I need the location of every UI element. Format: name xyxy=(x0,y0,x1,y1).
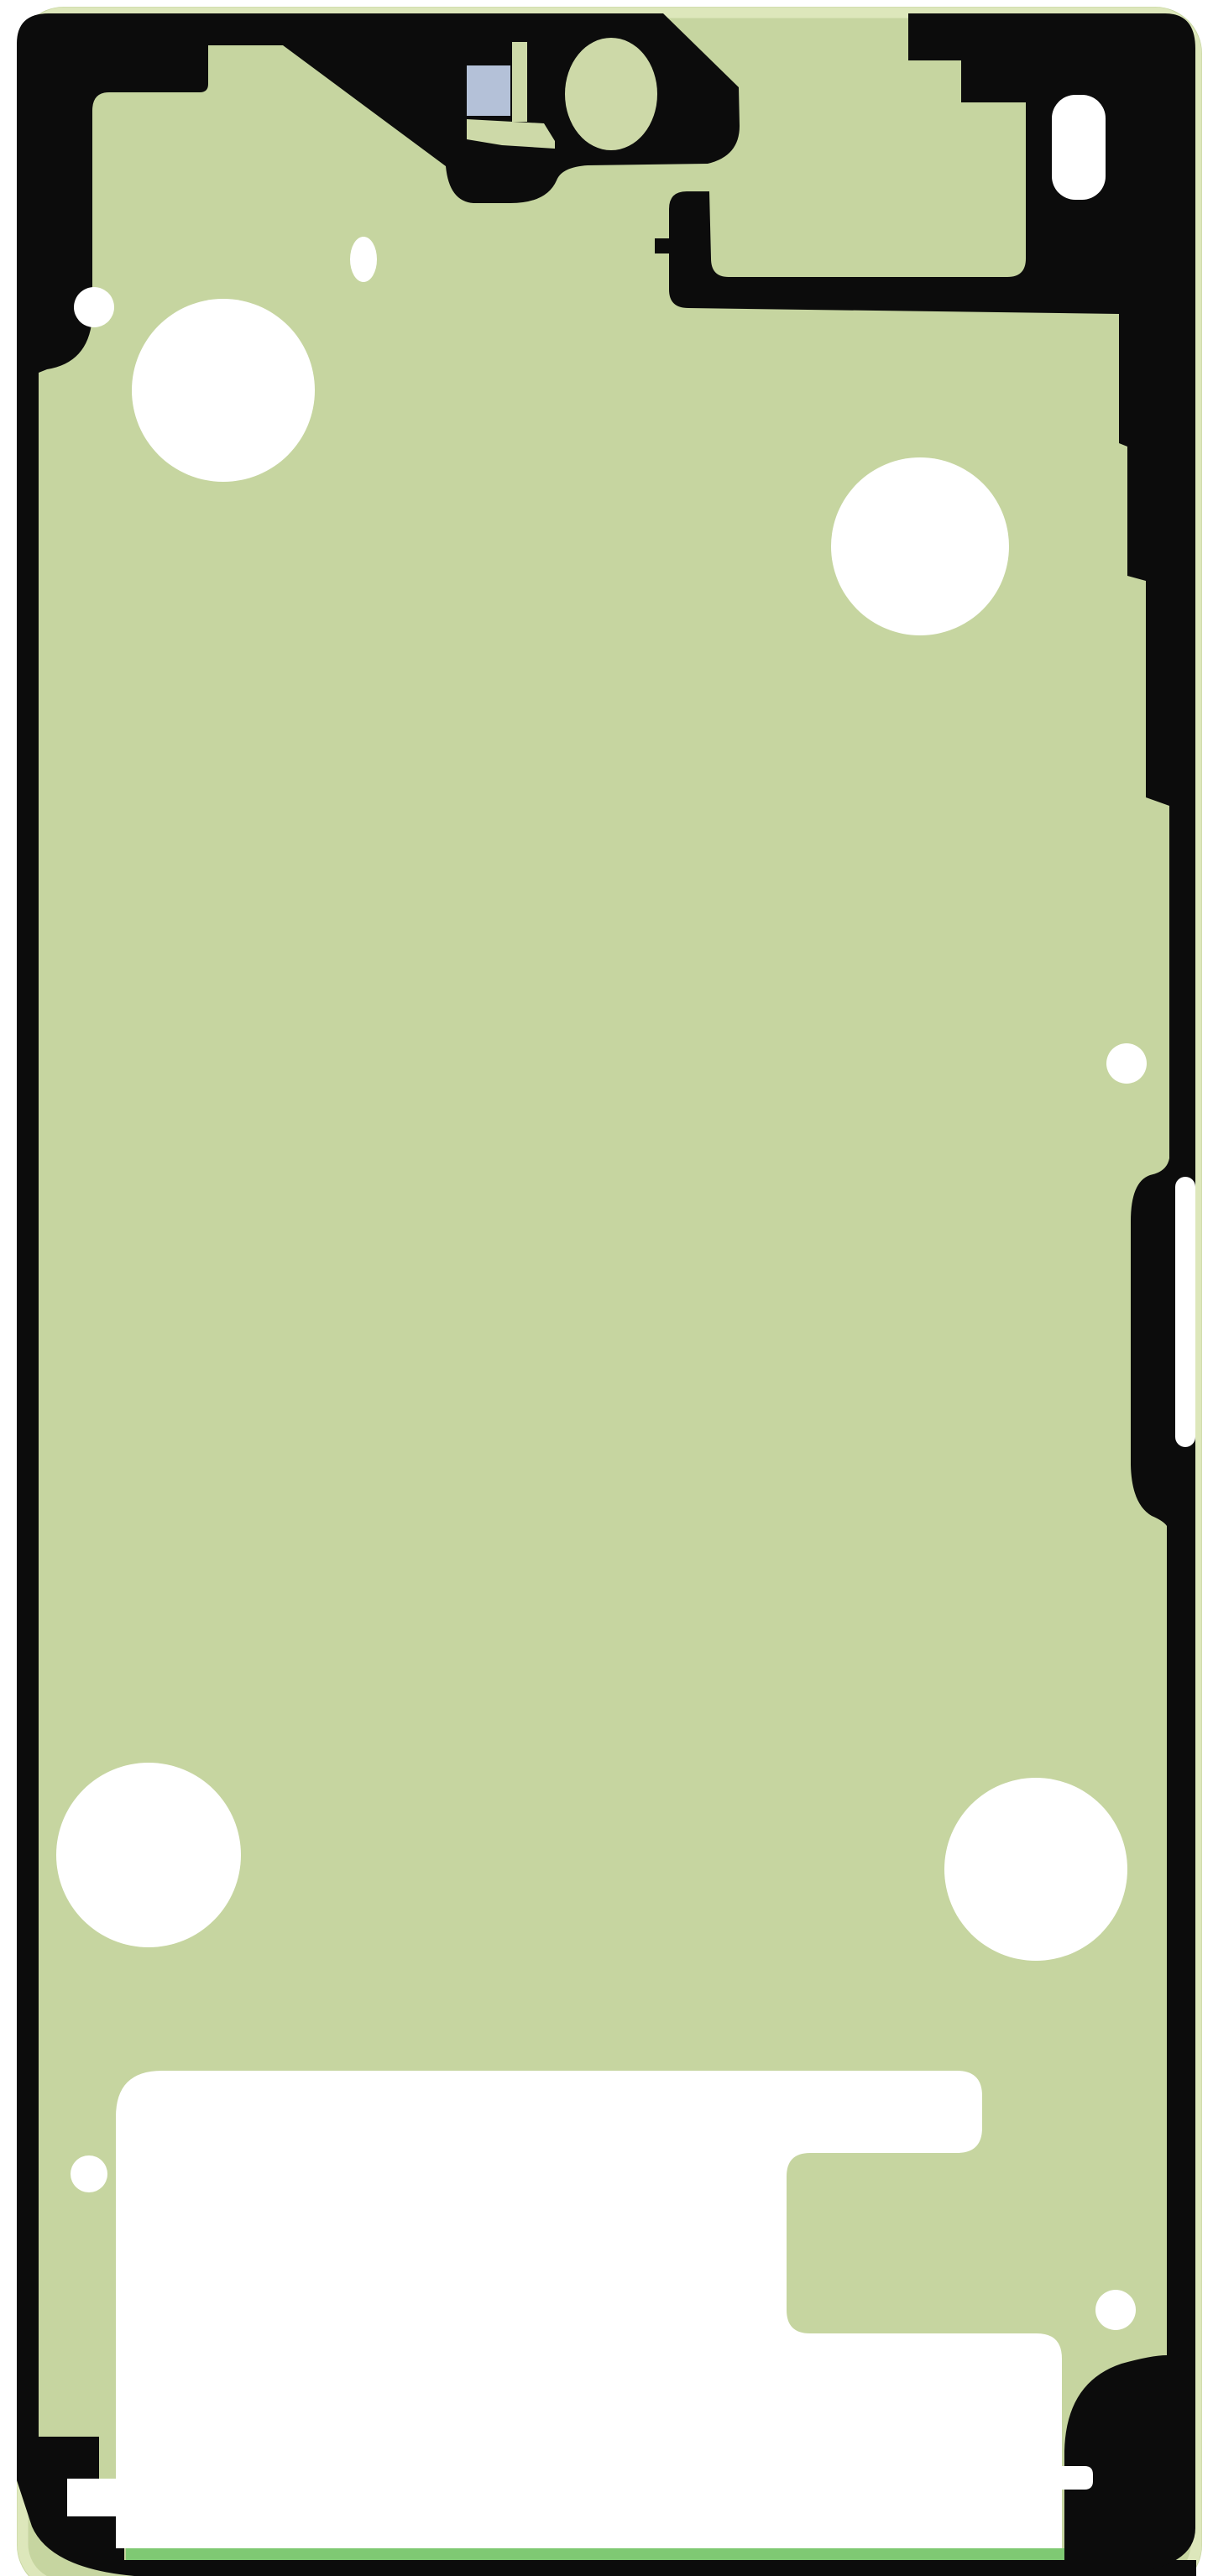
notch-white-bottom-left-border xyxy=(67,2479,116,2516)
hole-circle-upper-right-large xyxy=(831,457,1009,635)
camera-ring-hole-green xyxy=(565,38,657,150)
hole-slot-top-right xyxy=(1052,95,1106,200)
hole-circle-bottom-right-large xyxy=(944,1778,1127,1961)
product-photo-stage xyxy=(0,0,1213,2576)
hole-circle-bottom-left-large xyxy=(56,1763,241,1947)
print-gap-channel xyxy=(512,42,527,122)
bright-green-strip-bottom xyxy=(126,2548,1064,2560)
hole-oval-upper-left xyxy=(350,237,377,282)
adhesive-sheet-photo xyxy=(0,0,1213,2576)
hole-slot-right-edge-power xyxy=(1175,1177,1195,1447)
hole-circle-top-left-small xyxy=(74,287,114,327)
hole-dot-bottom-right-small xyxy=(1095,2290,1136,2330)
hole-circle-top-left-large xyxy=(132,299,315,482)
hole-dot-bottom-left-small xyxy=(71,2155,107,2192)
hole-dot-right-middle xyxy=(1106,1043,1147,1084)
liner-pull-tab-blue xyxy=(467,65,510,116)
